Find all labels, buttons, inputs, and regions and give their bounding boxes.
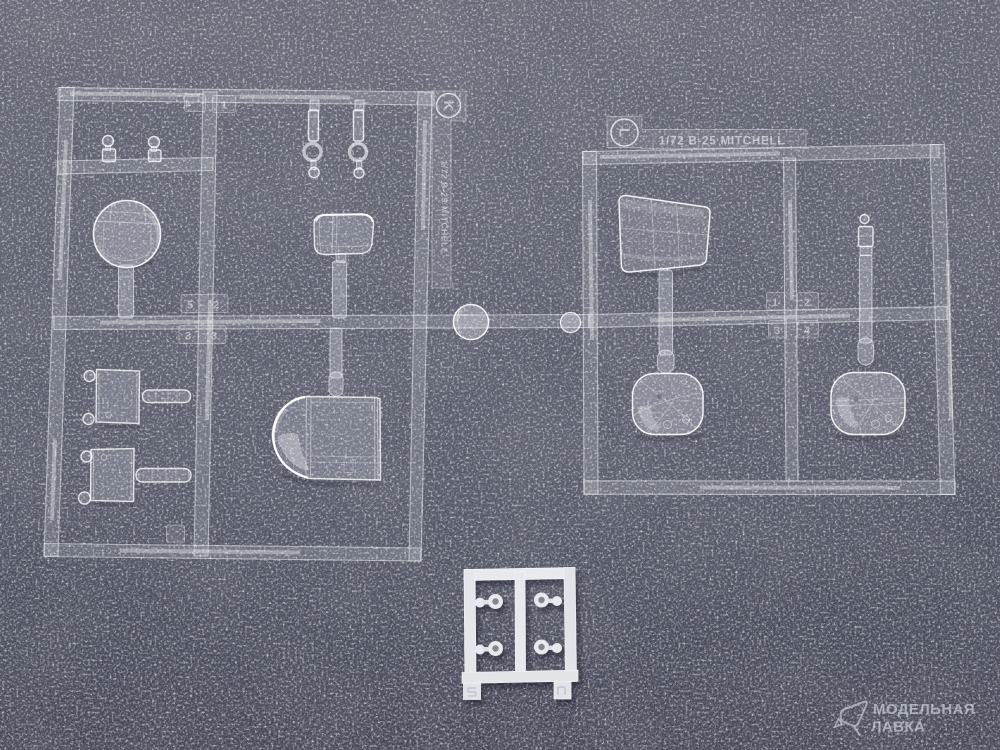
svg-text:K: K xyxy=(441,101,456,111)
svg-text:L: L xyxy=(616,128,633,137)
svg-text:5: 5 xyxy=(187,300,193,312)
svg-text:1/72 B-25 MITCHELL: 1/72 B-25 MITCHELL xyxy=(659,136,785,148)
svg-text:ЛАВКА: ЛАВКА xyxy=(871,719,925,736)
svg-text:4: 4 xyxy=(184,99,191,111)
svg-text:2: 2 xyxy=(804,297,810,309)
svg-text:2: 2 xyxy=(213,300,219,312)
svg-text:4: 4 xyxy=(804,325,811,337)
svg-text:1: 1 xyxy=(221,100,227,112)
svg-text:1/72 B-25 MITCHELL: 1/72 B-25 MITCHELL xyxy=(440,160,450,253)
svg-text:3: 3 xyxy=(211,331,217,343)
svg-text:1: 1 xyxy=(772,297,778,309)
svg-text:3: 3 xyxy=(774,325,780,337)
svg-text:МОДЕЛЬНАЯ: МОДЕЛЬНАЯ xyxy=(873,701,975,718)
svg-text:3: 3 xyxy=(185,331,191,343)
